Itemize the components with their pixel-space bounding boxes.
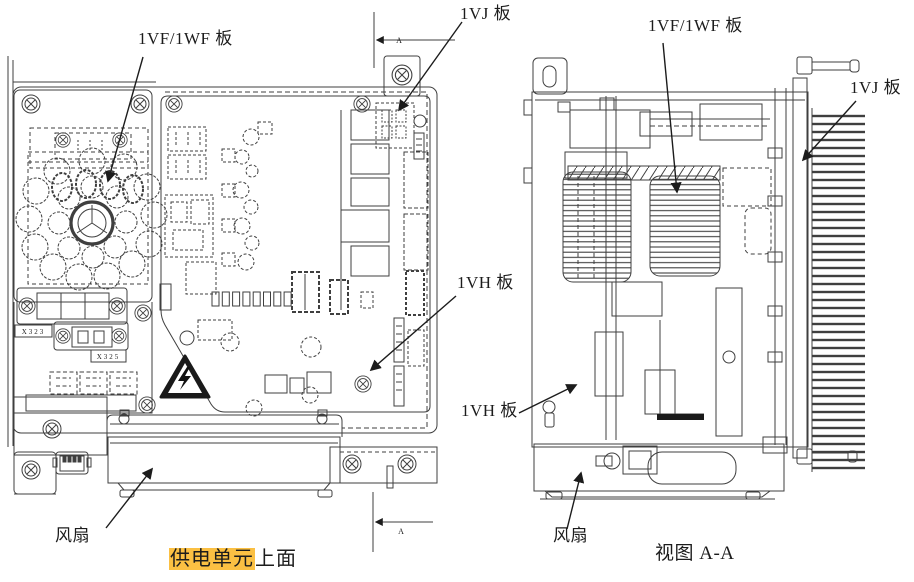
toroid-center	[71, 202, 113, 244]
mount-tab-top-right	[384, 56, 420, 96]
left-label-fan: 风扇	[55, 527, 90, 546]
connector-x323	[15, 322, 128, 350]
left-view-leader-arrows	[106, 22, 462, 528]
pcb-bottom-details	[180, 331, 331, 416]
terminal-block	[17, 288, 127, 324]
transformer-coils	[563, 166, 720, 282]
connector-label-x325: X325	[97, 353, 121, 361]
section-marker-top	[374, 12, 455, 68]
left-label-1vf-board: 1VF/1WF 板	[138, 30, 233, 49]
back-panel	[793, 78, 807, 458]
fan-housing	[108, 437, 340, 483]
dashed-connector-row	[26, 372, 137, 411]
pcb-dashed-components	[165, 122, 272, 340]
1vj-board-side	[768, 88, 786, 445]
caption: 供电单元上面	[169, 542, 297, 571]
bottom-left-bolt	[543, 401, 555, 427]
view-title: 视图 A-A	[655, 544, 735, 565]
side-center-components	[595, 282, 742, 436]
right-label-1vf-board: 1VF/1WF 板	[648, 17, 743, 36]
caption-highlighted: 供电单元	[169, 548, 255, 570]
fan-assembly	[107, 410, 342, 497]
section-marker-bottom	[373, 492, 433, 552]
pcb-right-connectors	[341, 110, 428, 310]
toroid-module	[14, 90, 167, 302]
right-label-1vj-board: 1VJ 板	[850, 79, 901, 98]
bottom-right-plate	[330, 447, 437, 488]
pcb-pad-row	[212, 292, 291, 306]
left-label-1vh-board: 1VH 板	[457, 274, 514, 293]
high-voltage-warning-icon	[161, 356, 209, 397]
heatsink	[812, 108, 865, 472]
right-label-fan: 风扇	[553, 527, 588, 546]
coil-bobbins	[52, 170, 143, 203]
main-pcb	[160, 96, 430, 416]
right-label-1vh-board: 1VH 板	[461, 402, 518, 421]
mount-tab-top-left	[533, 58, 567, 94]
section-letter-bottom: A	[398, 527, 404, 536]
left-label-1vj-board: 1VJ 板	[460, 5, 511, 24]
diagram-page: A A X323 X325	[0, 0, 914, 582]
enclosure-outline	[8, 56, 437, 447]
pcb-capacitors	[222, 129, 259, 270]
connector-label-x323: X323	[22, 328, 46, 336]
left-view-drawing: A A X323 X325	[8, 12, 462, 552]
left-bottom-plate	[14, 397, 107, 494]
section-letter-top: A	[396, 36, 402, 45]
right-view-drawing	[519, 43, 865, 529]
side-dashed-components	[723, 168, 771, 254]
mount-bolt-top	[797, 57, 859, 74]
pcb-1vj-connector	[376, 103, 426, 159]
caption-rest: 上面	[255, 548, 297, 570]
side-fan-housing	[534, 437, 787, 499]
